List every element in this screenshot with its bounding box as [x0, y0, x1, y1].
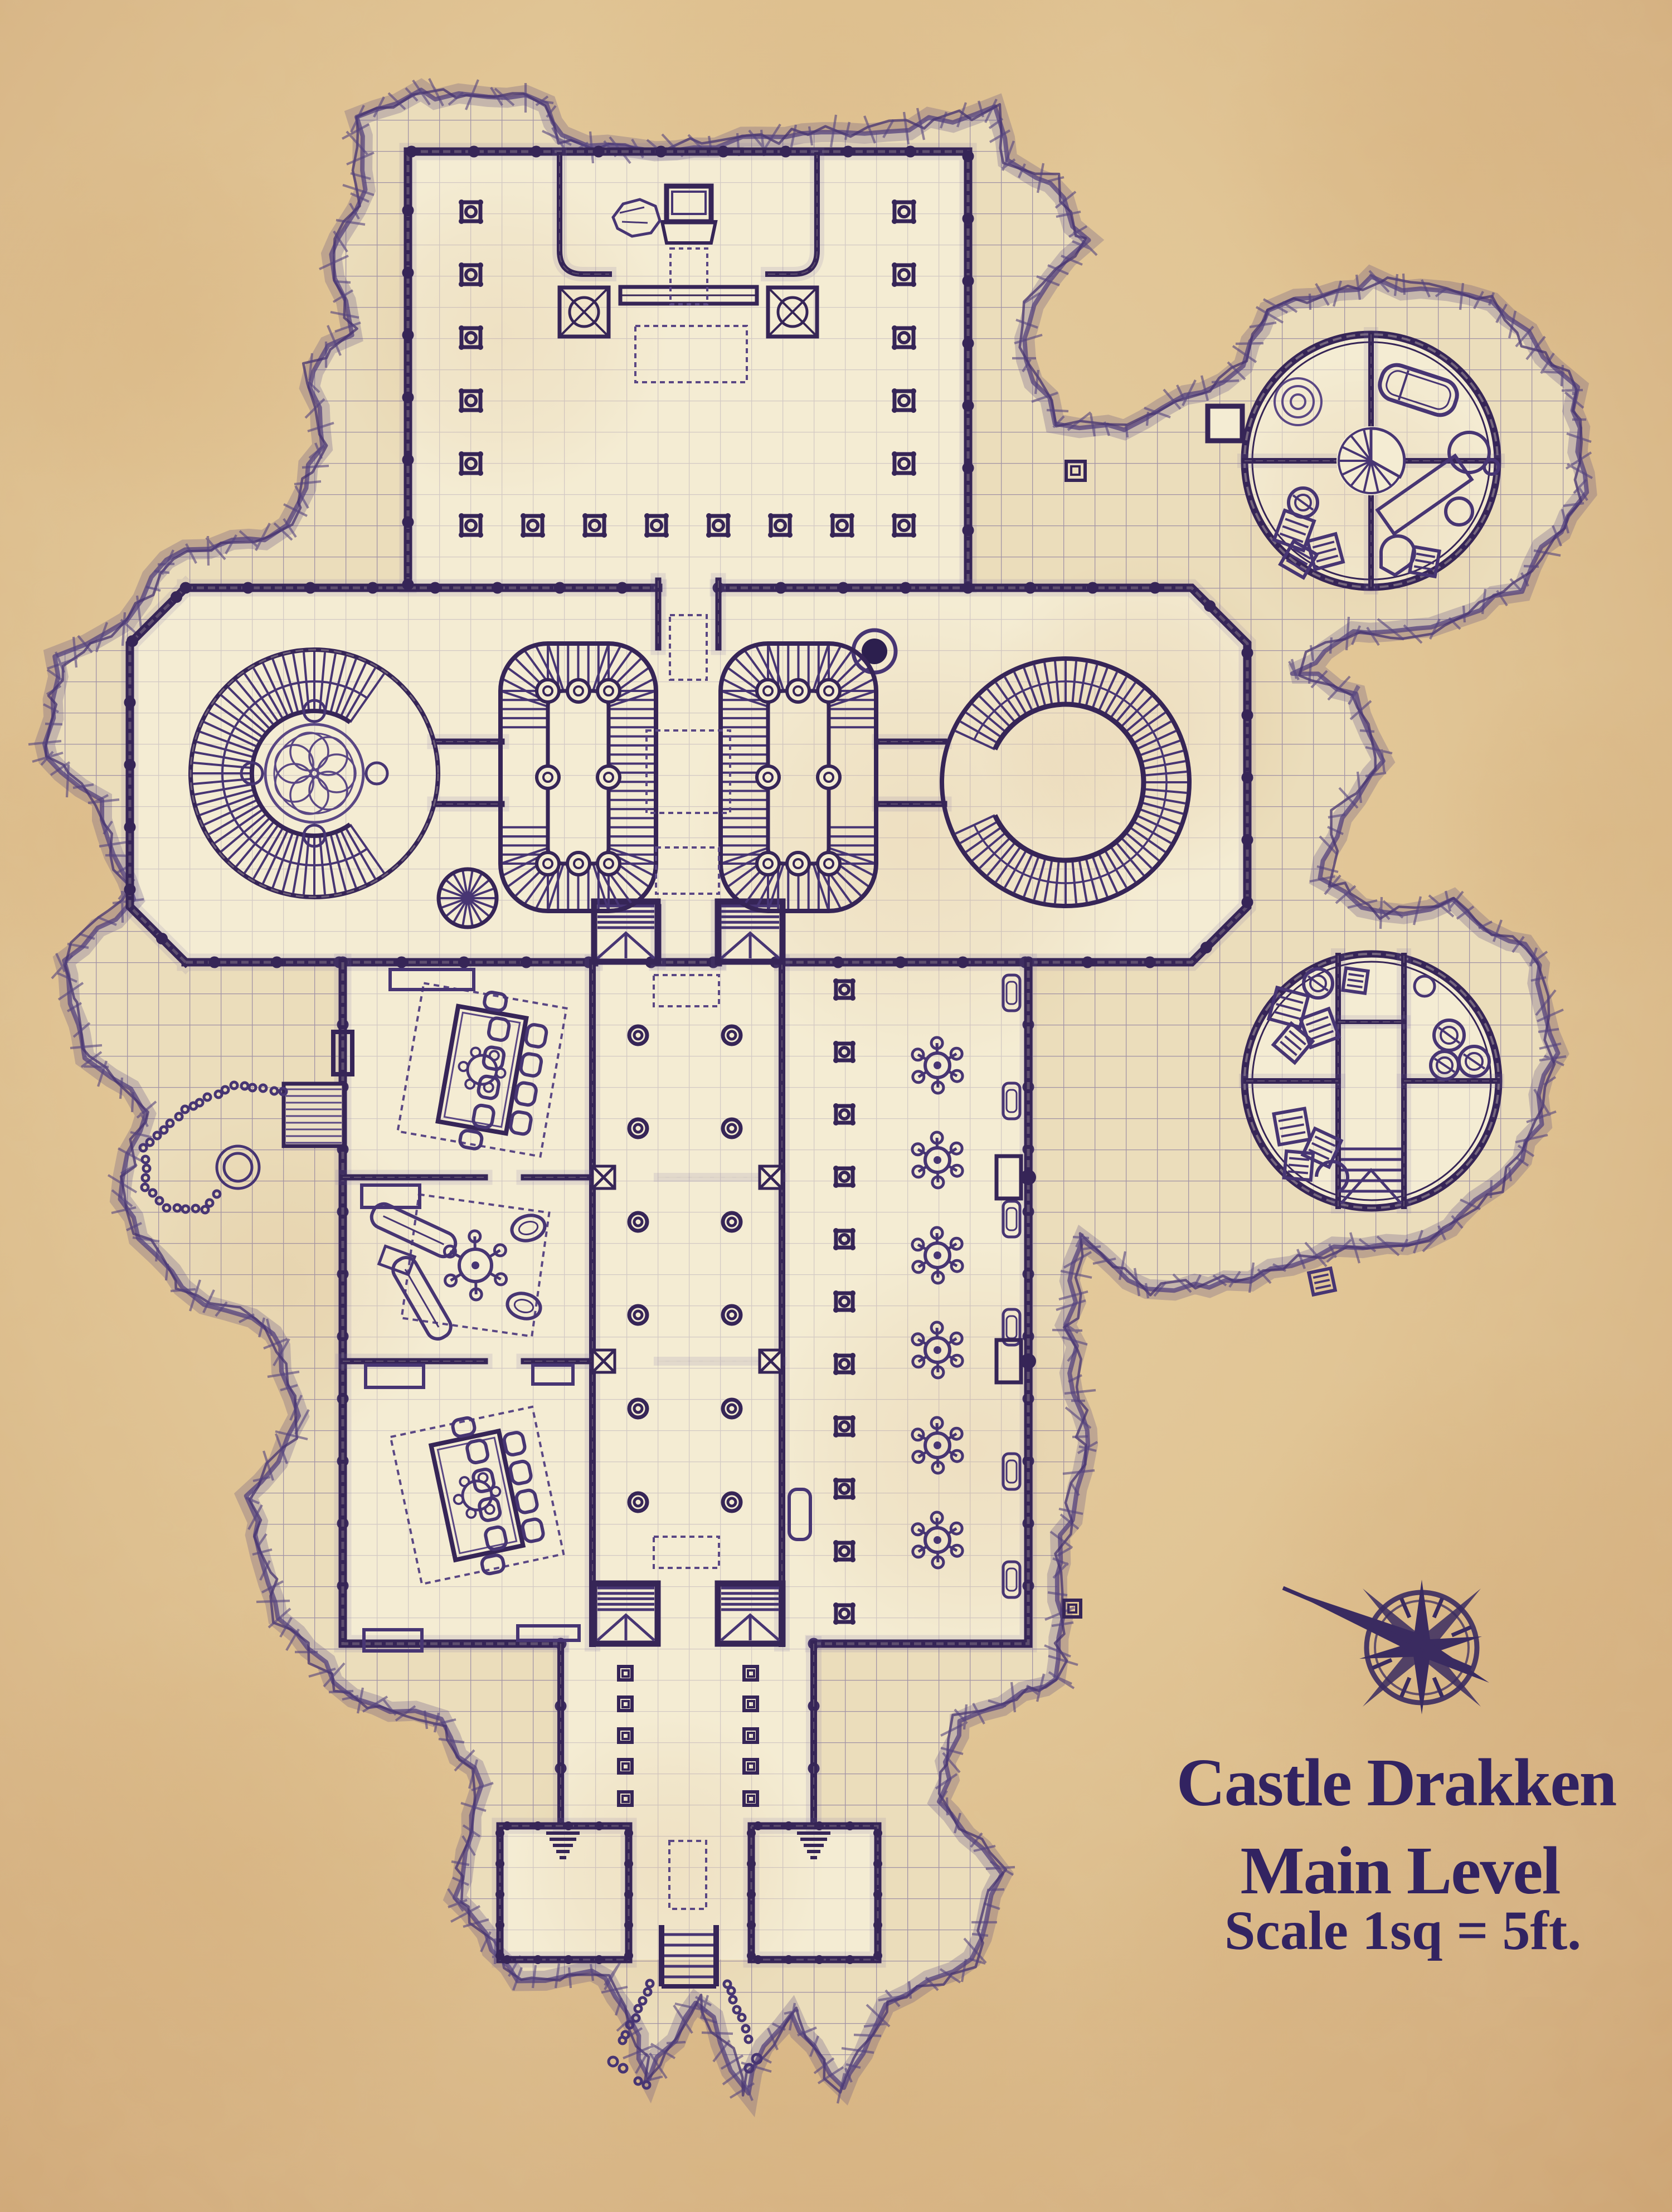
svg-text:Castle Drakken: Castle Drakken: [1177, 1745, 1616, 1820]
svg-text:Main Level: Main Level: [1241, 1833, 1560, 1908]
svg-text:Scale 1sq = 5ft.: Scale 1sq = 5ft.: [1224, 1899, 1581, 1961]
